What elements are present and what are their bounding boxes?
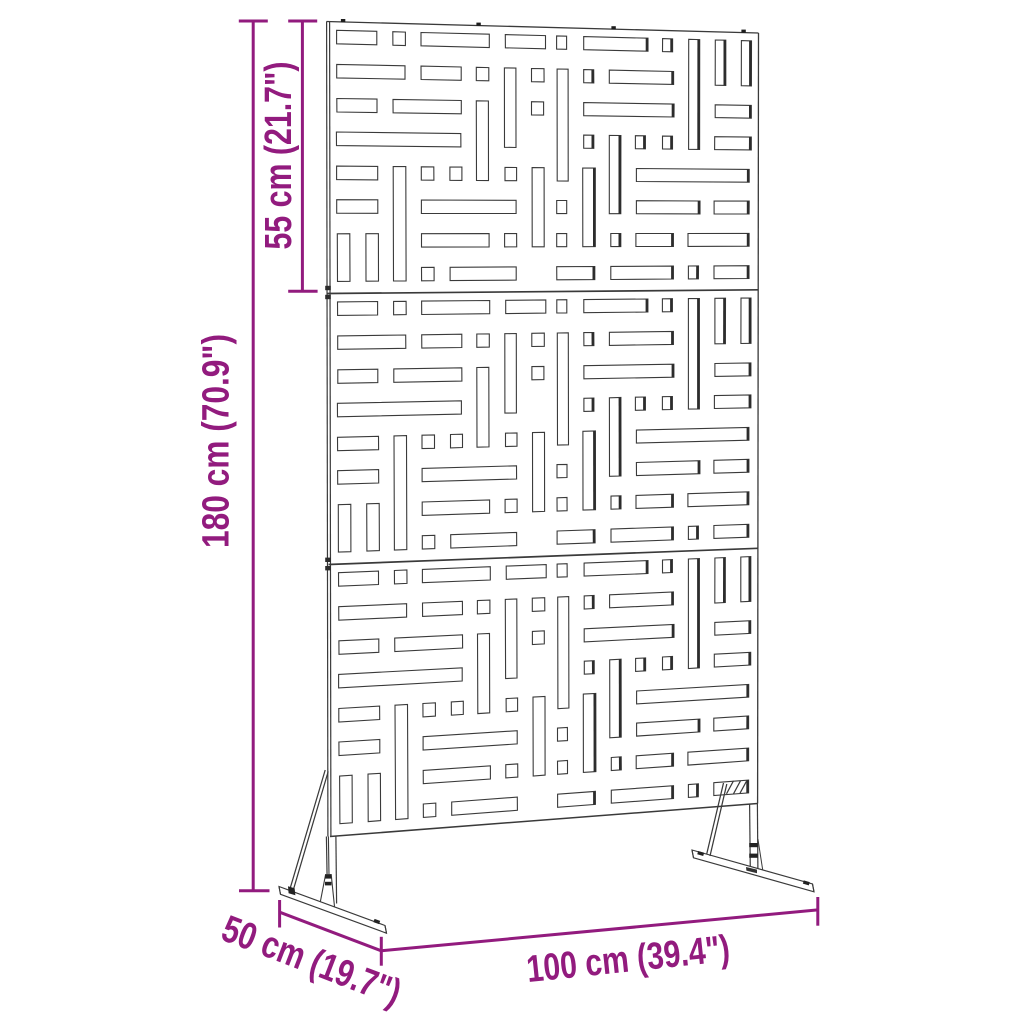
svg-text:180 cm (70.9"): 180 cm (70.9") (196, 334, 238, 548)
svg-text:55 cm (21.7"): 55 cm (21.7") (258, 62, 300, 250)
